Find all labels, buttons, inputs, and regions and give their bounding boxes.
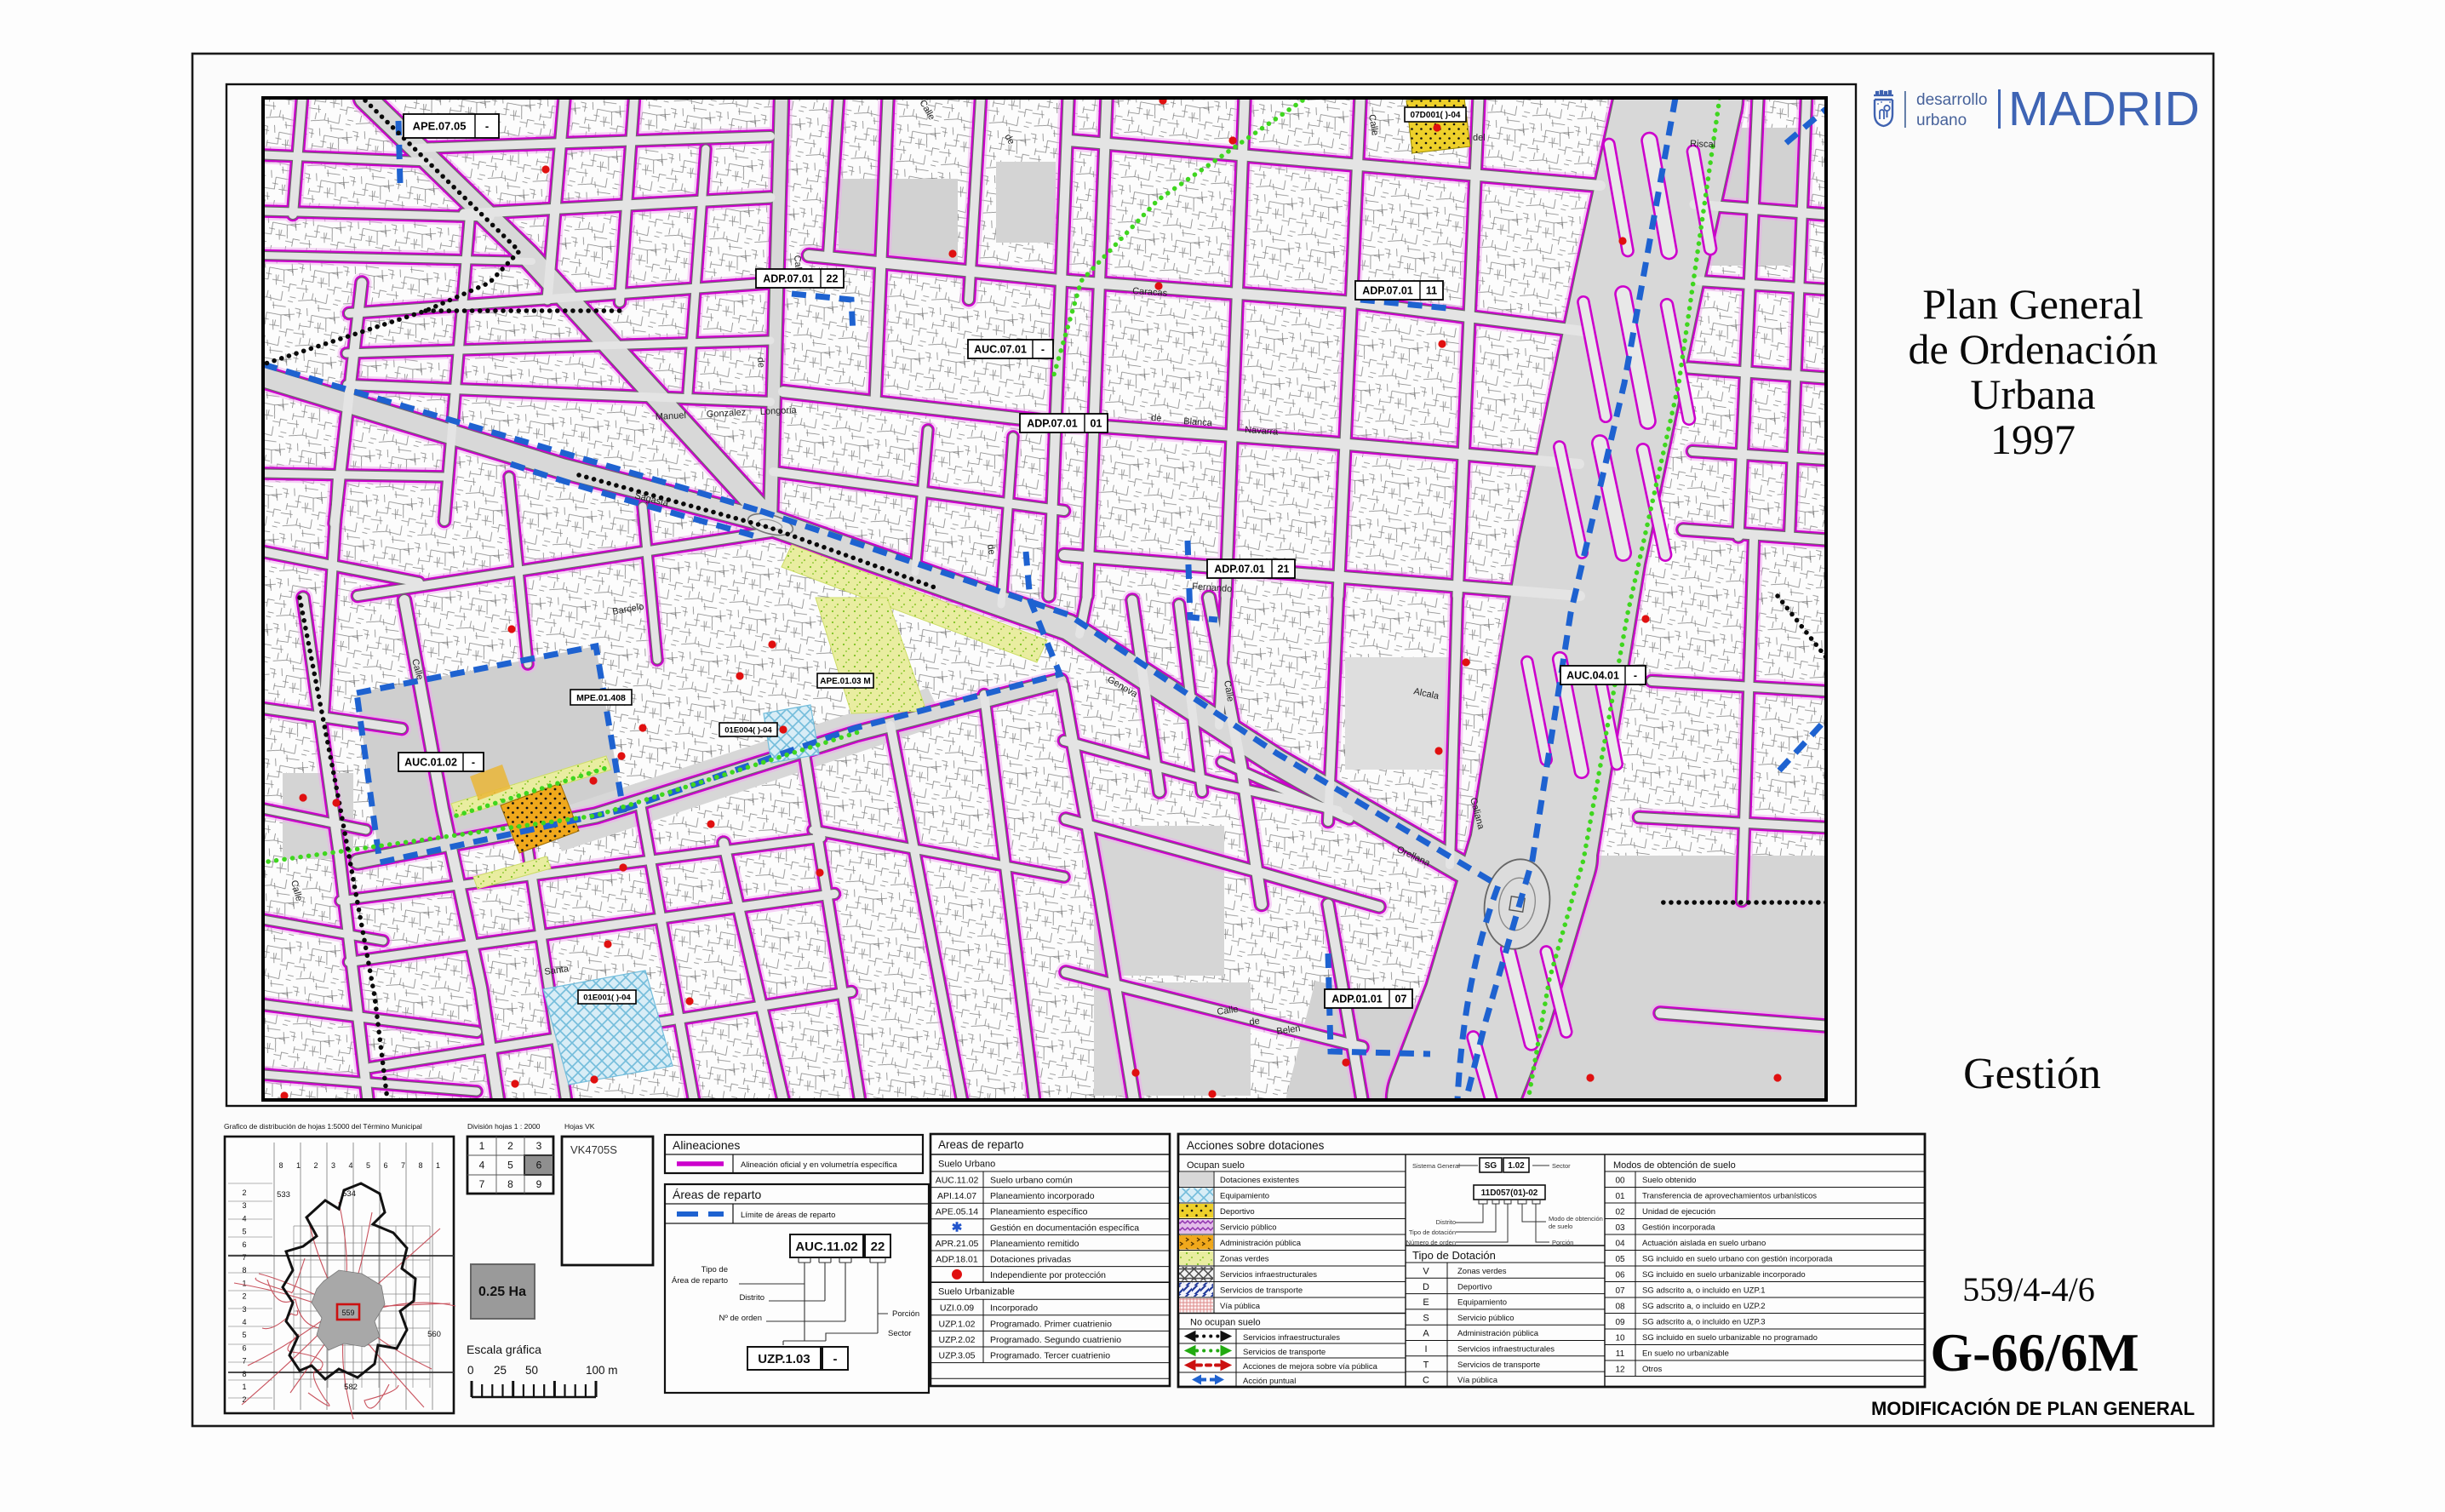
svg-text:Zonas verdes: Zonas verdes [1220, 1255, 1269, 1264]
svg-text:5: 5 [242, 1331, 246, 1339]
svg-text:VK4705S: VK4705S [570, 1143, 617, 1156]
svg-text:07: 07 [1615, 1286, 1625, 1296]
svg-text:Transferencia de aprovechamien: Transferencia de aprovechamientos urbaní… [1642, 1192, 1817, 1201]
svg-text:Servicios infraestructurales: Servicios infraestructurales [1220, 1270, 1317, 1280]
svg-text:Zonas verdes: Zonas verdes [1457, 1267, 1507, 1276]
svg-text:Urbana: Urbana [1970, 370, 2095, 418]
svg-text:Areas de reparto: Areas de reparto [938, 1138, 1024, 1151]
svg-text:de suelo: de suelo [1549, 1223, 1572, 1230]
svg-text:Suelo obtenido: Suelo obtenido [1642, 1176, 1696, 1185]
svg-text:Servicios infraestructurales: Servicios infraestructurales [1243, 1333, 1340, 1343]
svg-text:de Ordenación: de Ordenación [1909, 325, 2158, 373]
svg-text:Tipo de dotación: Tipo de dotación [1409, 1228, 1456, 1236]
svg-text:Programado. Tercer cuatrienio: Programado. Tercer cuatrienio [990, 1351, 1110, 1361]
svg-text:Suelo Urbanizable: Suelo Urbanizable [938, 1287, 1015, 1297]
svg-text:582: 582 [344, 1383, 358, 1392]
svg-text:1: 1 [296, 1161, 301, 1170]
svg-text:Suelo urbano común: Suelo urbano común [990, 1176, 1073, 1186]
svg-text:Distrito: Distrito [1436, 1218, 1456, 1226]
svg-text:APE.01.03 M: APE.01.03 M [820, 677, 870, 686]
svg-text:del: del [1473, 133, 1486, 143]
svg-text:SG incluido en suelo urbano co: SG incluido en suelo urbano con gestión … [1642, 1255, 1833, 1264]
svg-text:AUC.01.02: AUC.01.02 [404, 757, 457, 769]
svg-text:0.25 Ha: 0.25 Ha [478, 1285, 526, 1299]
svg-text:Sector: Sector [1552, 1162, 1571, 1170]
svg-text:Gestión en documentación espec: Gestión en documentación específica [990, 1223, 1139, 1233]
svg-text:Servicio público: Servicio público [1220, 1223, 1277, 1233]
svg-text:Gonzalez: Gonzalez [707, 408, 747, 420]
svg-text:-: - [472, 757, 475, 769]
svg-text:05: 05 [1615, 1255, 1625, 1264]
svg-text:ADP.01.01: ADP.01.01 [1331, 994, 1383, 1005]
svg-text:SG: SG [1485, 1161, 1497, 1171]
svg-text:Tipo de: Tipo de [701, 1265, 728, 1274]
svg-text:533: 533 [277, 1190, 290, 1200]
svg-text:Servicios de transporte: Servicios de transporte [1457, 1360, 1540, 1370]
svg-text:6: 6 [383, 1161, 387, 1170]
svg-text:Área de reparto: Área de reparto [672, 1276, 728, 1286]
svg-text:Alineación oficial y en volume: Alineación oficial y en volumetría espec… [741, 1160, 897, 1170]
svg-text:UZP.1.02: UZP.1.02 [939, 1319, 976, 1329]
svg-text:01: 01 [1091, 418, 1102, 430]
svg-text:G-66/6M: G-66/6M [1930, 1322, 2139, 1383]
svg-text:1: 1 [242, 1279, 246, 1287]
svg-text:ADP.07.01: ADP.07.01 [1362, 285, 1413, 297]
svg-text:07: 07 [1395, 994, 1407, 1005]
svg-text:2: 2 [242, 1188, 246, 1197]
svg-text:Planeamiento incorporado: Planeamiento incorporado [990, 1191, 1095, 1201]
svg-text:SG adscrito a, o incluido en U: SG adscrito a, o incluido en UZP.1 [1642, 1286, 1766, 1296]
svg-text:8: 8 [278, 1161, 283, 1170]
svg-text:Distrito: Distrito [739, 1293, 764, 1303]
svg-text:Plan General: Plan General [1922, 280, 2144, 328]
svg-text:8: 8 [418, 1161, 422, 1170]
svg-text:Otros: Otros [1642, 1365, 1662, 1374]
svg-text:00: 00 [1615, 1177, 1625, 1186]
svg-text:Nº de orden: Nº de orden [719, 1314, 762, 1323]
svg-text:02: 02 [1615, 1208, 1625, 1217]
svg-text:4: 4 [242, 1214, 246, 1223]
svg-text:Acciones de mejora sobre vía p: Acciones de mejora sobre vía pública [1243, 1362, 1378, 1372]
svg-text:Hojas VK: Hojas VK [564, 1122, 595, 1131]
svg-text:A: A [1423, 1329, 1429, 1339]
svg-text:Administración pública: Administración pública [1457, 1329, 1539, 1338]
svg-text:Dotaciones existentes: Dotaciones existentes [1220, 1176, 1299, 1185]
svg-text:6: 6 [242, 1240, 246, 1249]
svg-text:1: 1 [242, 1383, 246, 1391]
svg-text:Límite de áreas de reparto: Límite de áreas de reparto [741, 1211, 835, 1220]
svg-text:01E001( )-04: 01E001( )-04 [583, 993, 631, 1002]
svg-text:T: T [1423, 1360, 1429, 1370]
svg-text:ADP.18.01: ADP.18.01 [936, 1255, 978, 1265]
svg-text:V: V [1423, 1267, 1429, 1277]
svg-text:Deportivo: Deportivo [1457, 1282, 1492, 1291]
svg-text:4: 4 [479, 1160, 485, 1171]
svg-text:Suelo Urbano: Suelo Urbano [938, 1160, 995, 1170]
svg-text:10: 10 [1615, 1334, 1625, 1343]
svg-text:50: 50 [525, 1364, 538, 1377]
svg-text:8: 8 [242, 1266, 246, 1274]
svg-text:APE.05.14: APE.05.14 [936, 1207, 978, 1217]
svg-text:desarrollo: desarrollo [1916, 91, 1987, 109]
svg-text:AUC.11.02: AUC.11.02 [936, 1176, 979, 1186]
svg-text:D: D [1423, 1282, 1429, 1292]
svg-text:01E004( )-04: 01E004( )-04 [724, 725, 772, 735]
svg-text:AUC.11.02: AUC.11.02 [795, 1240, 857, 1254]
svg-text:AUC.04.01: AUC.04.01 [1566, 670, 1619, 682]
svg-text:ADP.07.01: ADP.07.01 [763, 273, 814, 285]
svg-text:7: 7 [242, 1357, 246, 1366]
svg-text:I: I [1424, 1344, 1427, 1354]
svg-text:urbano: urbano [1916, 112, 1967, 129]
svg-text:MODIFICACIÓN DE PLAN GENERAL: MODIFICACIÓN DE PLAN GENERAL [1871, 1398, 2195, 1419]
svg-text:3: 3 [536, 1140, 542, 1152]
svg-text:Sector: Sector [888, 1329, 911, 1338]
svg-text:Gestión incorporada: Gestión incorporada [1642, 1223, 1715, 1233]
svg-text:3: 3 [242, 1305, 246, 1314]
svg-text:División hojas 1 : 2000: División hojas 1 : 2000 [467, 1122, 541, 1131]
svg-text:Servicios infraestructurales: Servicios infraestructurales [1457, 1345, 1555, 1354]
svg-text:SG incluido en suelo urbanizab: SG incluido en suelo urbanizable incorpo… [1642, 1270, 1806, 1280]
svg-text:de: de [1249, 1016, 1261, 1028]
svg-text:Planeamiento remitido: Planeamiento remitido [990, 1239, 1079, 1249]
svg-text:de: de [985, 543, 997, 555]
svg-text:4: 4 [348, 1161, 352, 1170]
svg-text:Servicios de transporte: Servicios de transporte [1220, 1286, 1303, 1296]
svg-text:3: 3 [242, 1201, 246, 1210]
svg-text:11: 11 [1616, 1349, 1625, 1359]
svg-text:08: 08 [1615, 1303, 1625, 1312]
svg-text:-: - [833, 1352, 838, 1366]
svg-text:11D057(01)-02: 11D057(01)-02 [1481, 1188, 1538, 1198]
svg-text:7: 7 [401, 1161, 405, 1170]
svg-text:04: 04 [1615, 1240, 1625, 1249]
svg-text:Modo de obtención: Modo de obtención [1549, 1215, 1603, 1223]
svg-text:Servicios de transporte: Servicios de transporte [1243, 1348, 1326, 1357]
svg-text:Dotaciones privadas: Dotaciones privadas [990, 1255, 1071, 1265]
svg-text:Equipamiento: Equipamiento [1220, 1192, 1269, 1201]
svg-text:1: 1 [436, 1161, 440, 1170]
svg-text:Programado. Segundo cuatrienio: Programado. Segundo cuatrienio [990, 1335, 1121, 1345]
svg-text:2: 2 [507, 1140, 513, 1152]
svg-text:Deportivo: Deportivo [1220, 1207, 1255, 1217]
svg-text:5: 5 [242, 1228, 246, 1236]
svg-text:6: 6 [242, 1343, 246, 1352]
svg-text:ADP.07.01: ADP.07.01 [1027, 418, 1078, 430]
svg-text:22: 22 [871, 1240, 885, 1254]
svg-text:En suelo no urbanizable: En suelo no urbanizable [1642, 1349, 1729, 1359]
svg-text:Servicio público: Servicio público [1457, 1314, 1515, 1323]
svg-text:✱: ✱ [952, 1220, 963, 1234]
svg-text:6: 6 [536, 1160, 542, 1171]
svg-text:Unidad de ejecución: Unidad de ejecución [1642, 1207, 1715, 1217]
svg-text:Blanca: Blanca [1183, 416, 1213, 428]
svg-text:MPE.01.408: MPE.01.408 [576, 693, 626, 703]
svg-text:Riscal: Riscal [1690, 139, 1715, 150]
svg-text:UZP.3.05: UZP.3.05 [939, 1351, 976, 1361]
svg-text:11: 11 [1426, 285, 1437, 297]
svg-text:Sistema General: Sistema General [1412, 1162, 1460, 1170]
svg-text:APR.21.05: APR.21.05 [936, 1239, 979, 1249]
svg-text:Independiente por protección: Independiente por protección [990, 1270, 1106, 1280]
svg-text:559/4-4/6: 559/4-4/6 [1962, 1270, 2095, 1309]
svg-text:Escala gráfica: Escala gráfica [467, 1343, 541, 1356]
svg-text:de: de [1151, 413, 1162, 424]
svg-text:3: 3 [331, 1161, 335, 1170]
svg-text:Ocupan suelo: Ocupan suelo [1187, 1160, 1245, 1171]
svg-text:2: 2 [313, 1161, 318, 1170]
svg-text:06: 06 [1615, 1271, 1625, 1280]
svg-text:09: 09 [1615, 1318, 1625, 1327]
svg-text:API.14.07: API.14.07 [937, 1191, 976, 1201]
svg-text:8: 8 [507, 1178, 513, 1190]
svg-text:100 m: 100 m [586, 1364, 618, 1377]
svg-text:Grafico de distribución de hoj: Grafico de distribución de hojas 1:5000 … [224, 1122, 422, 1131]
svg-text:Incorporado: Incorporado [990, 1303, 1038, 1314]
svg-text:8: 8 [242, 1370, 246, 1378]
svg-text:1997: 1997 [1990, 415, 2076, 463]
svg-text:7: 7 [242, 1253, 246, 1262]
svg-text:1: 1 [479, 1140, 485, 1152]
svg-text:Modos de obtención de suelo: Modos de obtención de suelo [1613, 1160, 1736, 1171]
svg-text:21: 21 [1278, 564, 1290, 576]
svg-text:Acciones sobre dotaciones: Acciones sobre dotaciones [1187, 1139, 1325, 1152]
svg-text:Actuación aislada en suelo urb: Actuación aislada en suelo urbano [1642, 1239, 1766, 1248]
svg-text:2: 2 [242, 1292, 246, 1301]
svg-text:de: de [755, 357, 766, 368]
svg-text:APE.07.05: APE.07.05 [413, 120, 467, 133]
svg-text:Administración pública: Administración pública [1220, 1239, 1302, 1248]
svg-text:7: 7 [479, 1178, 485, 1190]
svg-text:SG adscrito a, o incluido en U: SG adscrito a, o incluido en UZP.2 [1642, 1302, 1766, 1311]
svg-text:03: 03 [1615, 1223, 1625, 1233]
svg-text:01: 01 [1615, 1192, 1625, 1201]
svg-text:MADRID: MADRID [2008, 82, 2200, 136]
svg-text:-: - [485, 120, 489, 133]
svg-text:ADP.07.01: ADP.07.01 [1214, 564, 1265, 576]
svg-text:Acción puntual: Acción puntual [1243, 1377, 1296, 1386]
svg-text:S: S [1423, 1313, 1429, 1323]
svg-text:Programado. Primer cuatrienio: Programado. Primer cuatrienio [990, 1319, 1112, 1329]
svg-text:Vía pública: Vía pública [1220, 1302, 1261, 1311]
svg-text:-: - [1634, 670, 1637, 682]
svg-text:-: - [1041, 344, 1045, 356]
svg-text:12: 12 [1615, 1366, 1625, 1375]
svg-text:UZP.1.03: UZP.1.03 [758, 1352, 810, 1366]
svg-text:534: 534 [342, 1189, 356, 1199]
svg-text:559: 559 [341, 1309, 354, 1317]
svg-text:4: 4 [242, 1318, 246, 1326]
svg-text:Porción: Porción [892, 1309, 919, 1319]
svg-text:C: C [1423, 1376, 1429, 1386]
svg-text:0: 0 [467, 1364, 474, 1377]
svg-text:Tipo de Dotación: Tipo de Dotación [1412, 1249, 1496, 1262]
svg-text:560: 560 [427, 1330, 441, 1339]
svg-text:Longoria: Longoria [760, 405, 798, 417]
svg-text:1.02: 1.02 [1508, 1161, 1525, 1171]
svg-text:5: 5 [366, 1161, 370, 1170]
svg-text:22: 22 [827, 273, 839, 285]
svg-text:9: 9 [536, 1178, 542, 1190]
svg-text:AUC.07.01: AUC.07.01 [974, 344, 1027, 356]
svg-text:UZI.0.09: UZI.0.09 [940, 1303, 974, 1314]
svg-text:5: 5 [507, 1160, 513, 1171]
svg-text:07D001( )-04: 07D001( )-04 [1411, 111, 1461, 120]
svg-text:Planeamiento específico: Planeamiento específico [990, 1207, 1088, 1217]
svg-text:Manuel: Manuel [656, 410, 687, 422]
svg-text:No ocupan suelo: No ocupan suelo [1190, 1318, 1261, 1328]
svg-text:UZP.2.02: UZP.2.02 [939, 1335, 976, 1345]
svg-text:Áreas de reparto: Áreas de reparto [673, 1188, 761, 1201]
svg-text:Equipamiento: Equipamiento [1457, 1298, 1507, 1308]
svg-text:E: E [1423, 1297, 1429, 1308]
svg-text:Vía pública: Vía pública [1457, 1376, 1498, 1385]
svg-text:SG adscrito a, o incluido en U: SG adscrito a, o incluido en UZP.3 [1642, 1318, 1766, 1327]
svg-text:SG incluido en suelo urbanizab: SG incluido en suelo urbanizable no prog… [1642, 1333, 1818, 1343]
svg-text:25: 25 [494, 1364, 507, 1377]
svg-text:Alineaciones: Alineaciones [673, 1138, 740, 1152]
svg-text:Gestión: Gestión [1963, 1050, 2101, 1098]
